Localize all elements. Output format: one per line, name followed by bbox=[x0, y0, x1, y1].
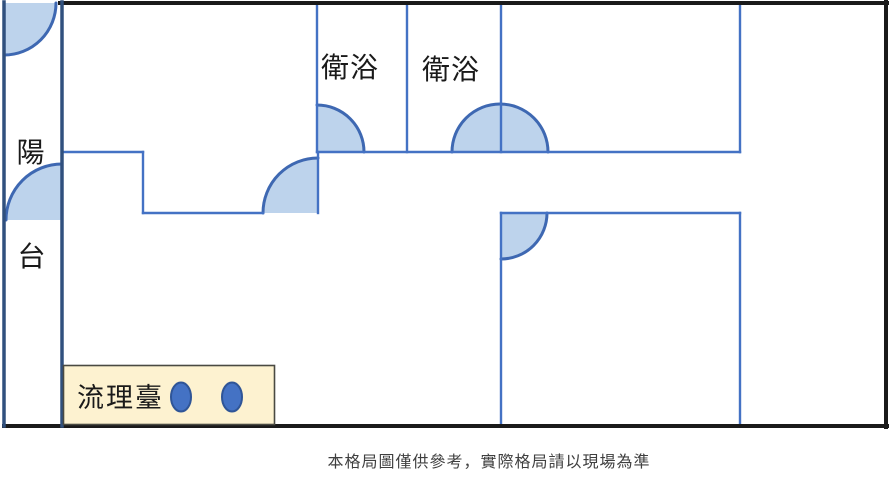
bathroom1-label: 衛浴 bbox=[321, 51, 379, 84]
interior-walls bbox=[62, 3, 740, 426]
sink-basin-right bbox=[222, 383, 242, 412]
sink-basin-left bbox=[171, 383, 191, 412]
room-labels: 陽 台 衛浴 衛浴 流理臺 bbox=[16, 51, 480, 414]
bathroom2-label: 衛浴 bbox=[422, 53, 480, 86]
kitchen-counter-label: 流理臺 bbox=[77, 383, 164, 414]
door-swing-fills bbox=[4, 3, 548, 259]
floor-plan-drawing: 陽 台 衛浴 衛浴 流理臺 本格局圖僅供參考，實際格局請以現場為準 bbox=[0, 0, 889, 503]
balcony-label-top: 陽 bbox=[16, 136, 45, 169]
balcony-label-bottom: 台 bbox=[17, 240, 46, 273]
disclaimer-text: 本格局圖僅供參考，實際格局請以現場為準 bbox=[327, 452, 650, 471]
floor-plan-page: 陽 台 衛浴 衛浴 流理臺 本格局圖僅供參考，實際格局請以現場為準 bbox=[0, 0, 889, 503]
